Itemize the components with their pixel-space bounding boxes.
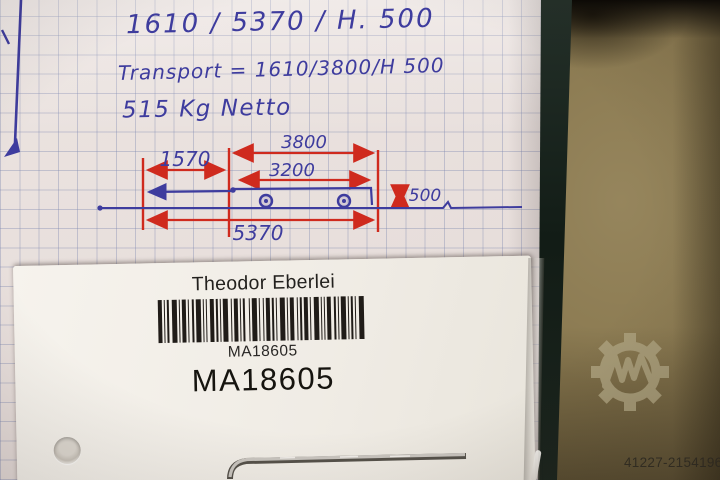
binder-wire xyxy=(220,446,475,480)
logo-m-pulse-icon xyxy=(605,356,653,386)
barcode-image xyxy=(158,296,365,343)
watermark-listing-id: 41227-21541968 xyxy=(624,455,720,470)
vendor-name-text: Theodor Eberlei xyxy=(13,267,513,300)
label-hole xyxy=(53,437,81,465)
photo: 1610 / 5370 / H. 500 Transport = 1610/38… xyxy=(0,0,720,480)
machineseeker-gear-logo-icon xyxy=(584,330,676,414)
